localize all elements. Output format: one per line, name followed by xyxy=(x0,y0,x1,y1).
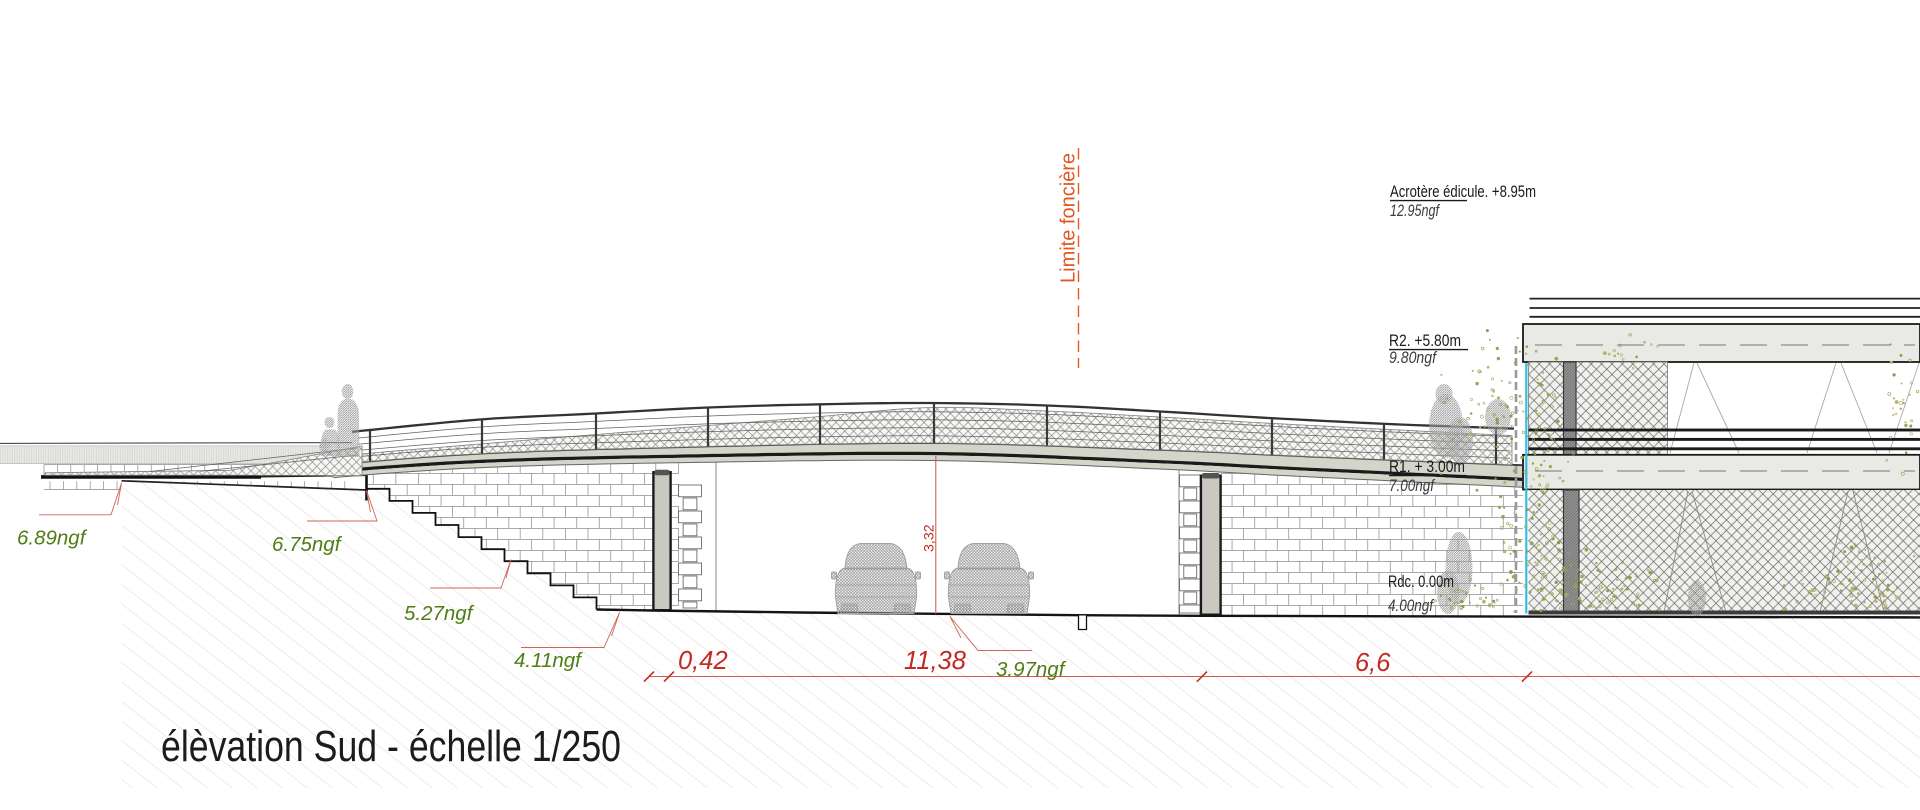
svg-text:3,32: 3,32 xyxy=(922,524,938,552)
svg-text:9.80ngf: 9.80ngf xyxy=(1389,349,1438,367)
svg-text:élèvation Sud - échelle 1/250: élèvation Sud - échelle 1/250 xyxy=(161,723,621,771)
svg-text:11,38: 11,38 xyxy=(904,647,967,675)
svg-text:6.89ngf: 6.89ngf xyxy=(17,527,88,550)
svg-text:R2. +5.80m: R2. +5.80m xyxy=(1389,332,1461,350)
svg-text:R1. + 3.00m: R1. + 3.00m xyxy=(1389,458,1465,476)
svg-text:6.75ngf: 6.75ngf xyxy=(272,533,343,556)
svg-text:Limite foncière: Limite foncière xyxy=(1058,153,1080,283)
svg-text:4.11ngf: 4.11ngf xyxy=(514,649,583,672)
svg-text:6,6: 6,6 xyxy=(1355,649,1391,677)
svg-text:5.27ngf: 5.27ngf xyxy=(404,602,475,625)
svg-text:Acrotère édicule. +8.95m: Acrotère édicule. +8.95m xyxy=(1390,183,1536,201)
svg-text:Rdc. 0.00m: Rdc. 0.00m xyxy=(1388,573,1454,591)
svg-text:3.97ngf: 3.97ngf xyxy=(996,658,1067,681)
svg-text:4.00ngf: 4.00ngf xyxy=(1388,597,1435,615)
svg-text:0,42: 0,42 xyxy=(678,647,728,675)
svg-text:12.95ngf: 12.95ngf xyxy=(1390,202,1441,220)
svg-text:7.00ngf: 7.00ngf xyxy=(1389,477,1436,495)
